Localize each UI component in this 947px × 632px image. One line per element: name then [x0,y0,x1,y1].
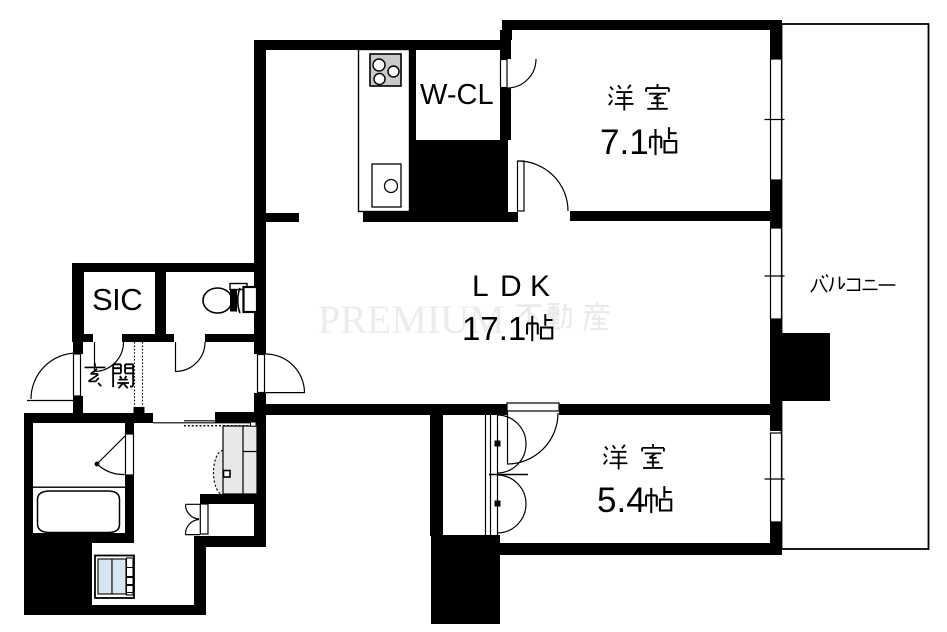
svg-text:D: D [500,270,522,303]
svg-text:5.4: 5.4 [597,481,646,520]
svg-text:K: K [530,270,550,303]
svg-text:SIC: SIC [92,282,142,317]
svg-text:7.1: 7.1 [600,123,649,162]
svg-text:L: L [472,270,489,303]
svg-text:17.1: 17.1 [462,310,526,347]
svg-text:W-CL: W-CL [420,79,494,111]
